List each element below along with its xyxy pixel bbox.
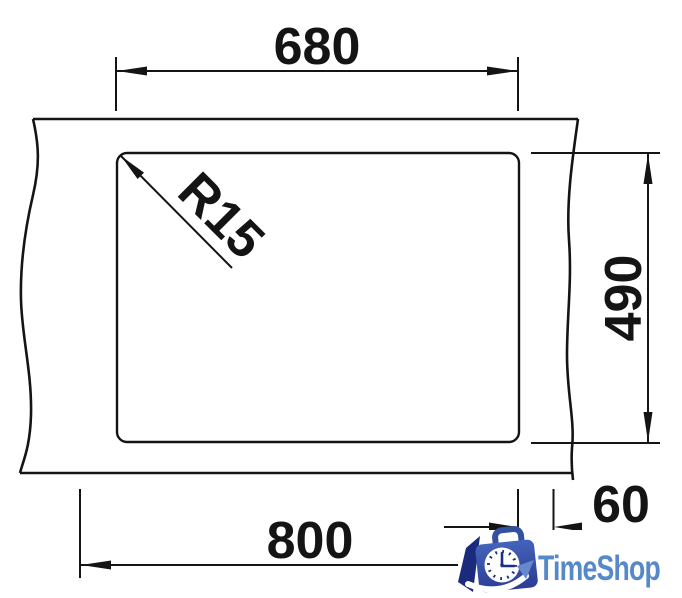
dim-edge-offset-label: 60: [592, 476, 650, 534]
arrowhead-down: [644, 412, 653, 442]
dimension-edge-offset: 60: [444, 476, 650, 534]
technical-drawing-sink-cutout: 680 490 R15 800 60: [0, 0, 682, 598]
countertop-right-break-line: [567, 119, 578, 480]
countertop-left-break-line: [20, 119, 38, 473]
dim-right-height-label: 490: [595, 255, 653, 342]
clock-center-dot: [500, 563, 504, 567]
radius-label: R15: [167, 162, 275, 270]
timeshop-logo: TimeShop: [458, 527, 662, 598]
arrowhead-corner: [121, 156, 144, 179]
arrowhead-left: [117, 67, 147, 76]
arrowhead-up: [644, 154, 653, 184]
arrowhead-right: [487, 67, 517, 76]
countertop-outline: [20, 119, 578, 480]
dim-bottom-width-label: 800: [267, 512, 354, 570]
radius-annotation: R15: [121, 156, 275, 270]
dim-top-width-label: 680: [274, 18, 361, 76]
arrowhead-left: [81, 561, 111, 570]
dimension-top-width: 680: [116, 18, 518, 111]
dimension-right-height: 490: [531, 153, 660, 443]
timeshop-logo-text: TimeShop: [538, 549, 660, 588]
